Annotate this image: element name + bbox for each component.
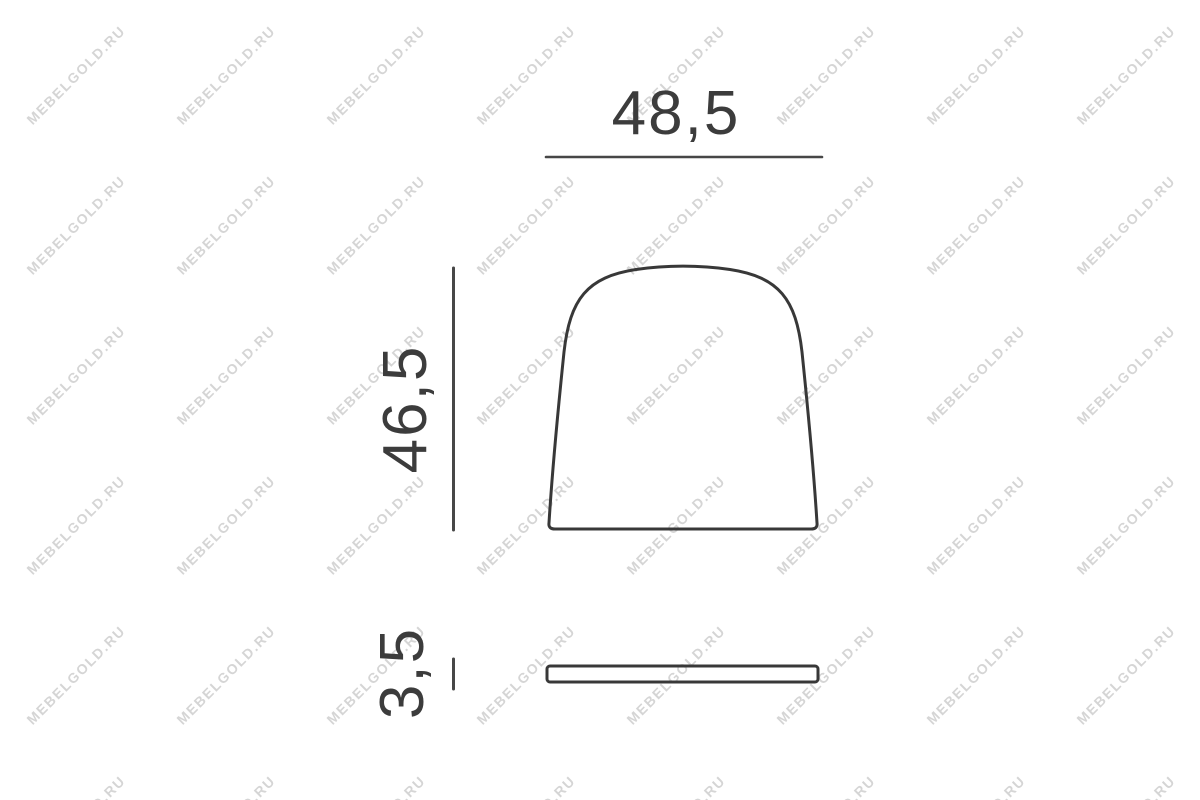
technical-drawing xyxy=(0,0,1200,800)
dimension-diagram: MEBELGOLD.RUMEBELGOLD.RUMEBELGOLD.RUMEBE… xyxy=(0,0,1200,800)
width-dimension-label: 48,5 xyxy=(612,83,741,145)
height-dimension-label: 46,5 xyxy=(375,345,437,474)
thickness-dimension-label: 3,5 xyxy=(372,627,434,719)
seat-front-outline xyxy=(549,266,817,529)
seat-side-panel xyxy=(547,666,818,682)
